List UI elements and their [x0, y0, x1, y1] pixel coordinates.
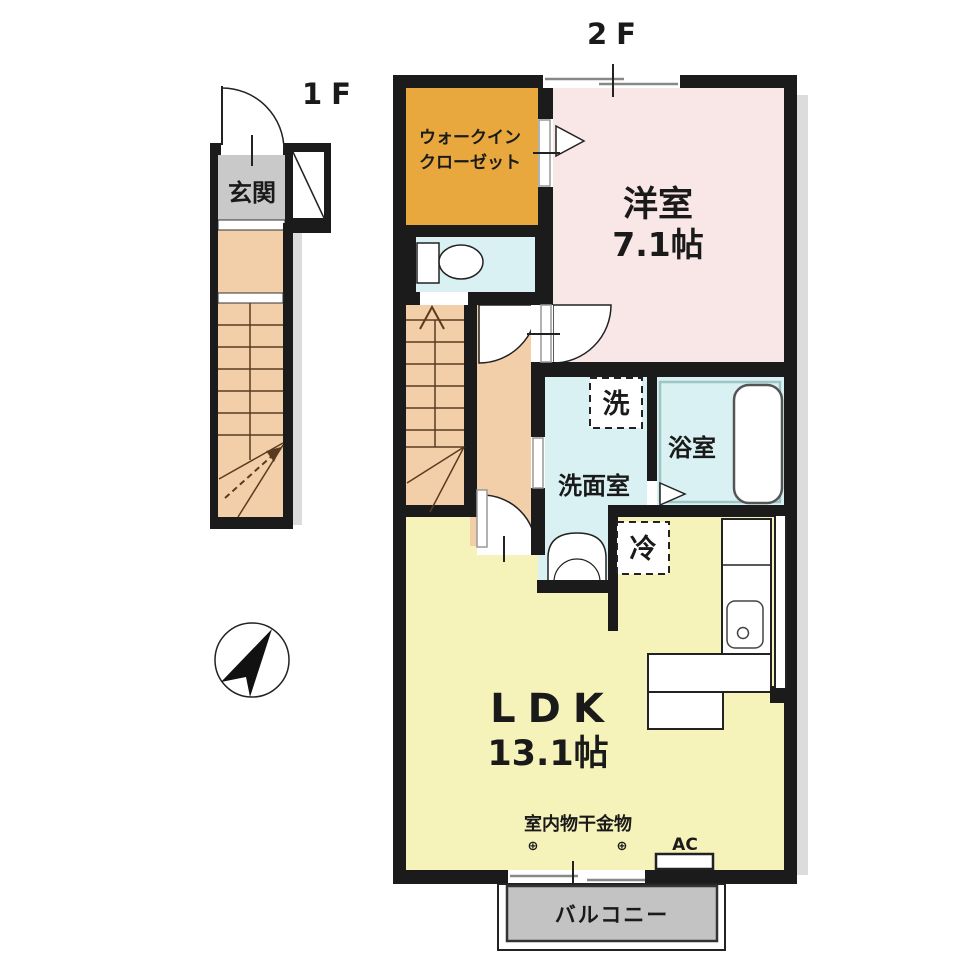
ac-unit-box — [656, 854, 713, 869]
bathtub — [734, 385, 782, 503]
toilet-bowl — [439, 245, 483, 279]
block-1f — [210, 86, 331, 529]
western-room-window — [543, 75, 680, 88]
washer-label: 洗 — [603, 389, 630, 420]
entrance-label: 玄関 — [228, 179, 276, 207]
western-room-label: 洋室 — [623, 184, 693, 225]
compass-icon — [215, 623, 289, 697]
laundry-hook-symbol-right: ⊕ — [617, 839, 628, 854]
ac-label: AC — [672, 835, 698, 855]
floor1-label: 1F — [302, 77, 360, 111]
kitchen-sink — [727, 601, 763, 648]
ldk-door-leaf — [477, 490, 487, 547]
entrance-threshold — [218, 220, 285, 230]
kitchen-table-side — [648, 692, 723, 729]
washroom-label: 洗面室 — [558, 472, 630, 500]
wic-label-line2: クローゼット — [419, 152, 521, 173]
bath-door-opening — [647, 481, 657, 505]
balcony-label: バルコニー — [555, 903, 670, 927]
wic-label-line1: ウォークイン — [419, 128, 521, 148]
laundry-hardware-label: 室内物干金物 — [524, 813, 632, 835]
toilet-tank — [417, 243, 439, 283]
refrigerator-label: 冷 — [630, 534, 657, 565]
room-stairs-2f — [399, 299, 465, 511]
stair-landing-line — [218, 293, 283, 303]
western-room-size: 7.1帖 — [612, 225, 703, 264]
ldk-label: LDK — [490, 686, 616, 732]
laundry-hook-symbol-left: ⊕ — [528, 839, 539, 854]
floor-plan-drawing: 2F 1F 玄関 ウォークイン クローゼット 洋室 7.1帖 洗 洗面室 浴室 … — [0, 0, 960, 960]
ldk-size: 13.1帖 — [487, 734, 608, 774]
wash-basin — [548, 533, 606, 582]
kitchen-table-top — [648, 654, 771, 692]
kitchen-sink-drain — [738, 628, 749, 639]
bathroom-label: 浴室 — [668, 434, 716, 462]
washroom-door-leaf — [533, 438, 543, 488]
floor2-label: 2F — [587, 17, 645, 51]
kitchen-window — [775, 516, 786, 688]
toilet-door-opening — [420, 292, 468, 305]
floor-plan-page: 2F 1F 玄関 ウォークイン クローゼット 洋室 7.1帖 洗 洗面室 浴室 … — [0, 0, 960, 960]
